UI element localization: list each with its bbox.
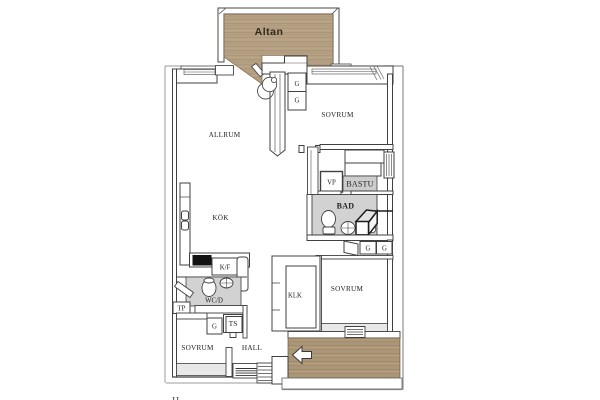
- svg-text:BASTU: BASTU: [346, 180, 373, 189]
- svg-text:TP: TP: [178, 305, 186, 312]
- svg-text:SOVRUM: SOVRUM: [331, 285, 364, 293]
- svg-text:WC/D: WC/D: [205, 297, 223, 304]
- svg-text:SOVRUM: SOVRUM: [181, 344, 214, 352]
- svg-text:ALLRUM: ALLRUM: [209, 131, 241, 139]
- svg-text:BAD: BAD: [337, 202, 355, 211]
- svg-text:TS: TS: [229, 319, 238, 328]
- svg-text:H: H: [172, 396, 179, 400]
- svg-text:SOVRUM: SOVRUM: [321, 111, 354, 119]
- svg-text:G: G: [366, 246, 371, 253]
- svg-text:K/F: K/F: [220, 264, 231, 271]
- svg-text:Altan: Altan: [255, 26, 284, 38]
- svg-text:HALL: HALL: [242, 344, 262, 352]
- svg-text:VP: VP: [327, 180, 336, 187]
- svg-text:G: G: [212, 324, 217, 331]
- svg-text:KLK: KLK: [288, 293, 302, 300]
- svg-text:G: G: [382, 246, 387, 253]
- svg-text:KÖK: KÖK: [212, 213, 229, 222]
- svg-text:G: G: [295, 81, 300, 88]
- svg-text:G: G: [295, 98, 300, 105]
